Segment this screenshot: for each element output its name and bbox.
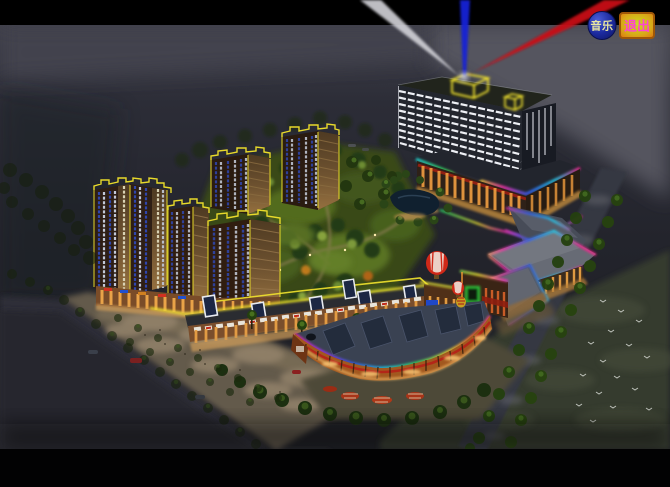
svg-text:音乐: 音乐 bbox=[591, 19, 614, 33]
svg-text:退出: 退出 bbox=[624, 19, 650, 34]
